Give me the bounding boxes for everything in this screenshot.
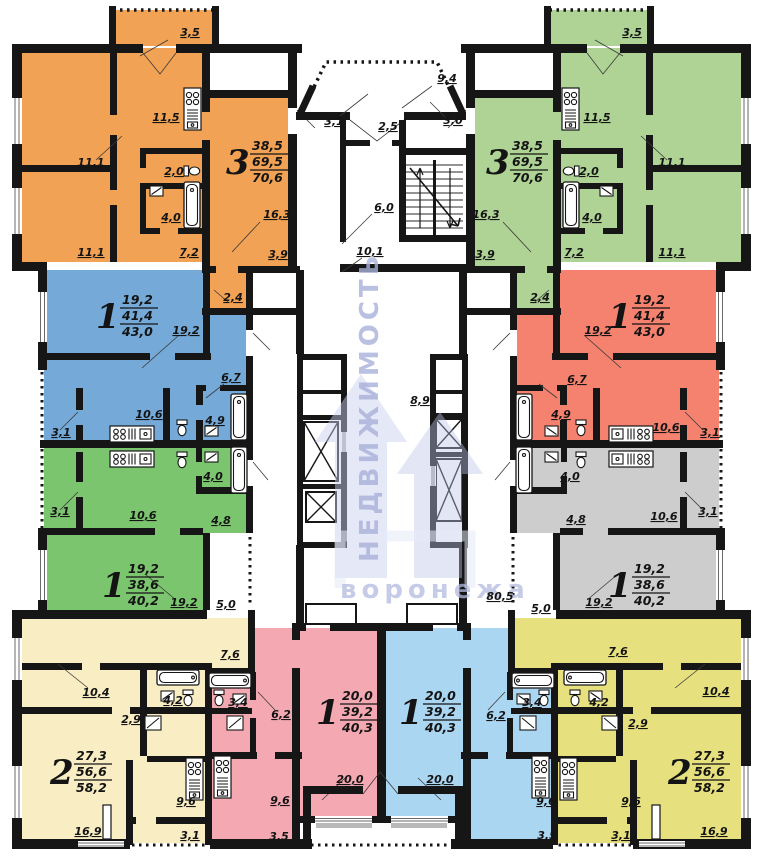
total-with-loggia-label: 40,3 [424,720,456,735]
area-dimension-label: 6,2 [486,709,506,722]
area-dimension-label: 3,1 [611,829,631,842]
room-count-label: 1 [608,297,632,337]
area-dimension-label: 5,0 [216,598,236,611]
area-dimension-label: 3,9 [475,248,495,261]
area-dimension-label: 2,4 [530,291,550,304]
area-dimension-label: 5,0 [531,602,551,615]
area-dimension-label: 11,5 [583,111,610,124]
total-area-label: 38,6 [128,577,159,592]
area-dimension-label: 9,6 [176,795,196,808]
area-dimension-label: 2,9 [628,717,648,730]
area-dimension-label: 3,5 [537,829,557,842]
apt-2room-bottom-right-label: 227,356,658,2 [667,748,730,795]
total-area-label: 41,4 [633,308,665,323]
apt-3room-top-left-label: 338,569,570,6 [226,138,288,185]
area-dimension-label: 2,9 [121,713,141,726]
area-dimension-label: 80,5 [486,590,513,603]
area-dimension-label: 6,7 [221,371,241,384]
room-count-label: 2 [667,753,692,793]
area-dimension-label: 8,9 [410,394,430,407]
area-dimension-label: 20,0 [336,773,363,786]
area-dimension-label: 3,5 [269,830,289,843]
area-dimension-label: 3,1 [180,829,200,842]
floor-plan: НЕДВИЖИМОСТЬ воронежа 3,59,43,53,12,53,0… [0,0,763,860]
area-dimension-label: 7,6 [608,645,628,658]
living-area-label: 38,5 [252,138,283,153]
area-dimension-label: 6,2 [271,708,291,721]
apt-1room-mid-left-label: 119,238,640,2 [102,561,164,608]
area-dimension-label: 2,0 [164,165,184,178]
area-dimension-label: 11,1 [77,246,104,259]
area-dimension-label: 3,0 [443,114,463,127]
total-area-label: 69,5 [512,154,543,169]
area-dimension-label: 3,5 [622,26,642,39]
room-count-label: 2 [49,753,74,793]
area-dimension-label: 16,3 [472,208,499,221]
total-with-loggia-label: 40,3 [341,720,373,735]
area-dimension-label: 7,2 [179,246,199,259]
total-with-loggia-label: 58,2 [694,780,725,795]
living-area-label: 19,2 [634,561,665,576]
area-dimension-label: 6,0 [374,201,394,214]
living-area-label: 19,2 [128,561,159,576]
area-dimension-label: 4,2 [588,696,609,709]
area-dimension-label: 3,1 [324,115,344,128]
area-dimension-label: 20,0 [426,773,453,786]
room-count-label: 1 [399,693,423,733]
apt-1room-bottom-center-right-label: 120,039,240,3 [399,688,461,735]
area-dimension-label: 4,2 [162,694,183,707]
area-dimension-label: 3,1 [698,505,718,518]
area-dimension-label: 11,5 [152,111,179,124]
area-dimension-label: 10,6 [135,408,162,421]
area-dimension-label: 7,6 [220,648,240,661]
area-dimension-label: 2,4 [223,291,243,304]
area-dimension-label: 7,2 [564,246,584,259]
apt-2room-bottom-left-label: 227,356,658,2 [49,748,112,795]
area-dimension-label: 9,6 [270,794,290,807]
area-dimension-label: 4,0 [559,470,580,483]
total-area-label: 56,6 [76,764,107,779]
living-area-label: 19,2 [634,292,665,307]
area-dimension-label: 4,9 [204,414,225,427]
living-area-label: 27,3 [76,748,107,763]
area-dimension-label: 9,6 [536,795,556,808]
total-area-label: 38,6 [634,577,665,592]
area-dimension-label: 19,2 [170,596,197,609]
living-area-label: 20,0 [425,688,456,703]
area-dimension-label: 16,3 [263,208,290,221]
room-count-label: 1 [608,566,632,606]
total-with-loggia-label: 70,6 [252,170,283,185]
total-with-loggia-label: 40,2 [127,593,159,608]
area-dimension-label: 10,6 [129,509,156,522]
living-area-label: 27,3 [694,748,725,763]
total-area-label: 41,4 [121,308,153,323]
area-dimension-label: 4,0 [202,470,223,483]
area-dimension-label: 2,5 [378,120,398,133]
area-dimension-label: 10,6 [650,510,677,523]
floor-plan-page: НЕДВИЖИМОСТЬ воронежа 3,59,43,53,12,53,0… [0,0,763,860]
area-dimension-label: 4,9 [550,408,571,421]
area-dimension-label: 3,1 [700,426,720,439]
apt-1room-mid-right-label: 119,238,640,2 [608,561,670,608]
apt-3room-top-right-label: 338,569,570,6 [486,138,548,185]
area-dimension-label: 4,8 [565,513,586,526]
area-dimension-label: 3,1 [50,505,70,518]
room-count-label: 1 [316,693,340,733]
total-area-label: 39,2 [342,704,373,719]
total-area-label: 39,2 [425,704,456,719]
apt-1room-right-label: 119,241,443,0 [608,292,670,339]
area-dimension-label: 11,1 [658,156,685,169]
area-dimension-label: 16,9 [700,825,727,838]
area-dimension-label: 4,0 [581,211,602,224]
area-dimension-label: 9,4 [437,72,457,85]
total-with-loggia-label: 40,2 [633,593,665,608]
room-count-label: 1 [102,566,126,606]
area-dimension-label: 3,4 [522,696,542,709]
total-area-label: 56,6 [694,764,725,779]
area-dimension-label: 9,6 [621,795,641,808]
elevator-shaft [306,492,336,522]
total-with-loggia-label: 43,0 [121,324,153,339]
apt-1room-left-label: 119,241,443,0 [96,292,158,339]
area-dimension-label: 11,1 [77,156,104,169]
area-dimension-label: 11,1 [658,246,685,259]
living-area-label: 19,2 [122,292,153,307]
apt-1room-bottom-center-left-label: 120,039,240,3 [316,688,378,735]
area-dimension-label: 2,0 [579,165,599,178]
area-dimension-label: 4,8 [210,514,231,527]
total-area-label: 69,5 [252,154,283,169]
area-dimension-label: 10,1 [356,245,383,258]
watermark-vertical-text: НЕДВИЖИМОСТЬ [355,252,385,562]
room-count-label: 3 [226,143,250,183]
total-with-loggia-label: 43,0 [633,324,665,339]
apt-3room-top-left-balcony[interactable] [112,10,216,46]
area-dimension-label: 10,4 [82,686,109,699]
area-dimension-label: 10,6 [652,421,679,434]
total-with-loggia-label: 58,2 [76,780,107,795]
area-dimension-label: 10,4 [702,685,729,698]
living-area-label: 38,5 [512,138,543,153]
living-area-label: 20,0 [342,688,373,703]
area-dimension-label: 16,9 [74,825,101,838]
area-dimension-label: 3,1 [51,426,71,439]
area-dimension-label: 3,4 [228,696,248,709]
area-dimension-label: 4,0 [160,211,181,224]
area-dimension-label: 3,9 [268,248,288,261]
area-dimension-label: 19,2 [172,324,199,337]
area-dimension-label: 6,7 [567,373,587,386]
room-count-label: 1 [96,297,120,337]
room-count-label: 3 [486,143,510,183]
total-with-loggia-label: 70,6 [512,170,543,185]
area-dimension-label: 3,5 [180,26,200,39]
